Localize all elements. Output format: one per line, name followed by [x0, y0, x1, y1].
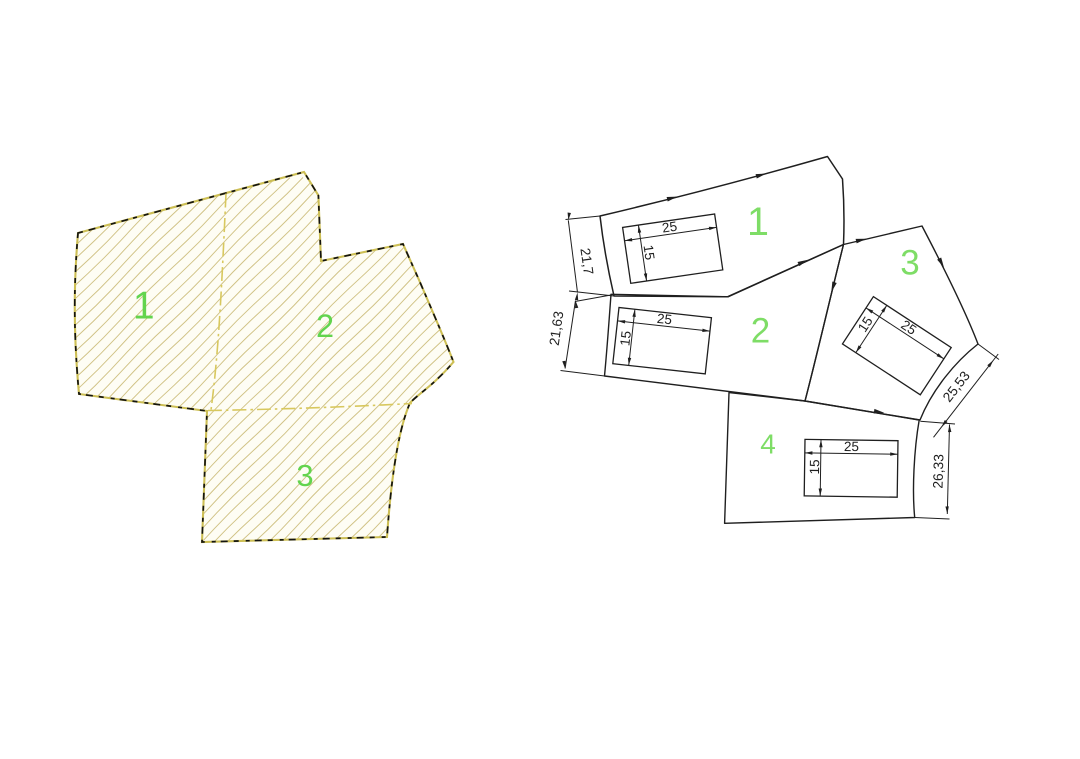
- svg-text:15: 15: [617, 330, 634, 347]
- svg-text:15: 15: [807, 459, 822, 474]
- svg-text:4: 4: [760, 429, 776, 460]
- svg-text:1: 1: [133, 285, 155, 328]
- svg-text:2: 2: [316, 308, 334, 344]
- svg-text:3: 3: [296, 458, 313, 493]
- svg-text:26,33: 26,33: [931, 454, 947, 489]
- svg-text:1: 1: [747, 200, 769, 244]
- svg-text:15: 15: [640, 244, 657, 261]
- svg-text:3: 3: [900, 244, 919, 283]
- svg-text:2: 2: [751, 312, 770, 351]
